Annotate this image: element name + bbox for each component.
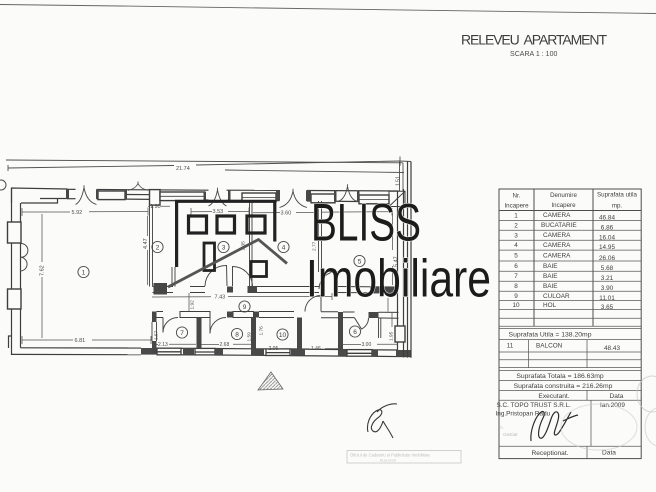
svg-text:CAMERA: CAMERA [543,212,571,219]
svg-text:CULOAR: CULOAR [543,293,570,300]
svg-text:4: 4 [282,245,286,252]
svg-text:1.57: 1.57 [154,330,160,340]
svg-text:Suprafata construita = 216.26m: Suprafata construita = 216.26mp [514,383,613,390]
svg-text:Gestiat: Gestiat [503,432,518,437]
svg-text:Bucuresti: Bucuresti [380,459,396,463]
svg-text:7: 7 [180,330,184,337]
svg-text:2: 2 [156,245,160,252]
svg-text:7.62: 7.62 [40,265,46,276]
svg-text:HOL: HOL [543,302,557,309]
svg-text:1.59: 1.59 [247,332,253,342]
svg-text:mp.: mp. [612,203,623,210]
svg-text:S.C. TOPO TRUST S.R.L.: S.C. TOPO TRUST S.R.L. [497,402,572,409]
svg-text:Incapere: Incapere [504,203,529,210]
svg-text:Nr.: Nr. [513,193,521,200]
svg-text:9: 9 [514,293,518,300]
svg-text:3: 3 [222,245,226,252]
svg-text:BAIE: BAIE [543,263,558,270]
svg-text:1.51: 1.51 [396,176,402,186]
svg-text:11.01: 11.01 [599,295,615,302]
svg-text:Suprafata Utila = 138.20mp: Suprafata Utila = 138.20mp [509,332,592,339]
svg-text:21.74: 21.74 [176,166,190,172]
svg-text:BAIE: BAIE [543,283,558,290]
svg-text:6: 6 [514,263,518,270]
svg-text:7: 7 [514,273,518,280]
svg-text:BAIE: BAIE [543,273,558,280]
svg-text:Data: Data [610,393,624,400]
svg-text:5.68: 5.68 [601,265,614,272]
svg-text:3.00: 3.00 [362,342,372,348]
svg-text:CAMERA: CAMERA [543,232,571,239]
svg-text:5.92: 5.92 [72,210,83,216]
svg-text:16.04: 16.04 [599,234,615,241]
svg-text:1.76: 1.76 [259,326,265,336]
svg-text:46.84: 46.84 [599,215,615,222]
svg-text:lv.: lv. [500,425,504,430]
svg-text:BUCATARIE: BUCATARIE [541,222,577,229]
svg-text:SCARA 1 : 100: SCARA 1 : 100 [510,51,558,58]
svg-text:48.43: 48.43 [604,345,620,352]
svg-text:5: 5 [514,253,518,260]
svg-text:6: 6 [353,329,357,336]
svg-text:2.13: 2.13 [158,342,168,348]
svg-text:RELEVEU APARTAMENT: RELEVEU APARTAMENT [461,32,608,48]
svg-text:3: 3 [514,232,518,239]
svg-text:8: 8 [514,283,518,290]
svg-text:1: 1 [82,270,86,277]
svg-text:Executant.: Executant. [538,393,569,400]
svg-text:1.90: 1.90 [150,204,161,210]
svg-text:3.53: 3.53 [213,209,224,215]
svg-text:1.95: 1.95 [389,331,395,341]
svg-text:Receptionat.: Receptionat. [531,450,568,457]
svg-text:Suprafata Totala = 186.63mp: Suprafata Totala = 186.63mp [516,373,604,380]
svg-text:4: 4 [514,242,518,249]
svg-text:Incapere: Incapere [551,202,576,209]
svg-text:6.86: 6.86 [601,225,614,232]
svg-text:3.60: 3.60 [281,211,292,217]
svg-text:1: 1 [514,213,518,220]
svg-text:3.90: 3.90 [601,285,614,292]
svg-text:2.05: 2.05 [269,346,279,352]
svg-text:1.92: 1.92 [190,300,196,310]
svg-text:11: 11 [507,343,514,350]
svg-text:3.65: 3.65 [601,304,614,311]
svg-text:BLISS: BLISS [311,194,421,253]
svg-text:CAMERA: CAMERA [543,242,571,249]
svg-text:6.81: 6.81 [75,338,86,344]
svg-text:9: 9 [243,304,247,311]
svg-text:Suprafata utila: Suprafata utila [597,192,637,199]
svg-text:Denumire: Denumire [550,192,577,199]
svg-text:1.46: 1.46 [311,346,321,352]
svg-text:Data: Data [602,450,616,457]
svg-text:BALCON: BALCON [536,343,563,350]
svg-text:Oficiul de Cadastru si Publici: Oficiul de Cadastru si Publicitate Imobi… [350,453,430,458]
svg-text:8: 8 [235,332,239,339]
svg-text:CAMERA: CAMERA [543,253,571,260]
svg-text:3.21: 3.21 [601,275,614,282]
svg-text:10: 10 [279,332,287,339]
svg-text:4.47: 4.47 [143,238,149,249]
svg-text:14.95: 14.95 [599,244,615,251]
svg-text:10: 10 [512,302,520,309]
svg-text:7.43: 7.43 [215,295,226,301]
svg-text:Imobiliare: Imobiliare [306,250,491,309]
svg-text:2.68: 2.68 [220,342,230,348]
svg-text:2: 2 [514,223,518,230]
svg-text:26.06: 26.06 [599,255,615,262]
